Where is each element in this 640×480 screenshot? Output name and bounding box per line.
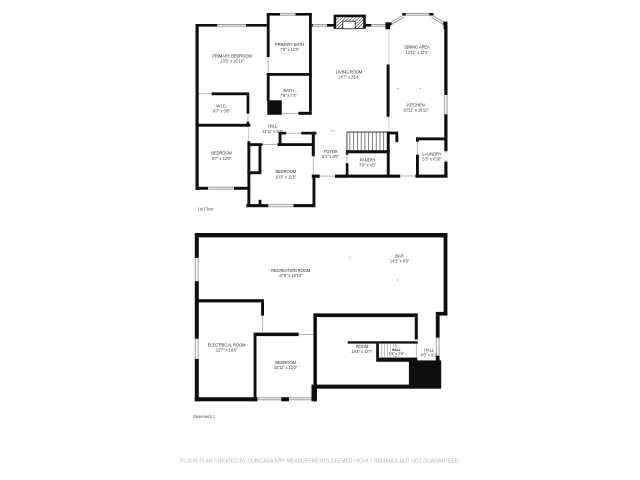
svg-text:Basement 1: Basement 1	[193, 414, 216, 419]
svg-text:12'11" x 11'4": 12'11" x 11'4"	[405, 50, 429, 55]
svg-text:12'7" x 18'6": 12'7" x 18'6"	[216, 347, 238, 352]
svg-text:13'5" x 16'11": 13'5" x 16'11"	[220, 59, 244, 64]
svg-text:47'8" x 18'10": 47'8" x 18'10"	[279, 273, 303, 278]
svg-text:7'3" x 7'4": 7'3" x 7'4"	[389, 352, 405, 356]
svg-text:9'7" x 5'8": 9'7" x 5'8"	[213, 109, 231, 114]
svg-text:10'11" x 16'11": 10'11" x 16'11"	[403, 108, 429, 113]
svg-text:9'7" x 12'0": 9'7" x 12'0"	[212, 156, 232, 161]
svg-text:10'11" x 12'0": 10'11" x 12'0"	[274, 365, 298, 370]
svg-text:4'3" x 9'1": 4'3" x 9'1"	[420, 352, 438, 357]
svg-text:6'1" x 8'5": 6'1" x 8'5"	[322, 154, 340, 159]
svg-text:HALL: HALL	[268, 124, 279, 129]
svg-text:1st Floor: 1st Floor	[198, 207, 215, 212]
svg-text:10'3" x 11'6": 10'3" x 11'6"	[275, 174, 297, 179]
svg-text:KITCHEN: KITCHEN	[407, 102, 424, 107]
svg-text:5'3" x 6'10": 5'3" x 6'10"	[422, 157, 442, 162]
svg-text:7'9" x 11'3": 7'9" x 11'3"	[280, 47, 300, 52]
svg-text:FLOOR PLAN CREATED BY CUBICASA: FLOOR PLAN CREATED BY CUBICASA APP. MEAS…	[180, 458, 460, 464]
svg-text:14'7" x 26'4": 14'7" x 26'4"	[338, 75, 360, 80]
svg-text:11'11" x 9'4": 11'11" x 9'4"	[262, 129, 283, 134]
svg-text:7'9" x 7'4": 7'9" x 7'4"	[280, 93, 298, 98]
svg-text:HALL: HALL	[392, 348, 401, 352]
svg-text:7'6" x 4'5": 7'6" x 4'5"	[359, 163, 377, 168]
svg-text:18'1" x 13'7": 18'1" x 13'7"	[351, 349, 373, 354]
svg-text:14'3" x 8'9": 14'3" x 8'9"	[390, 259, 410, 264]
